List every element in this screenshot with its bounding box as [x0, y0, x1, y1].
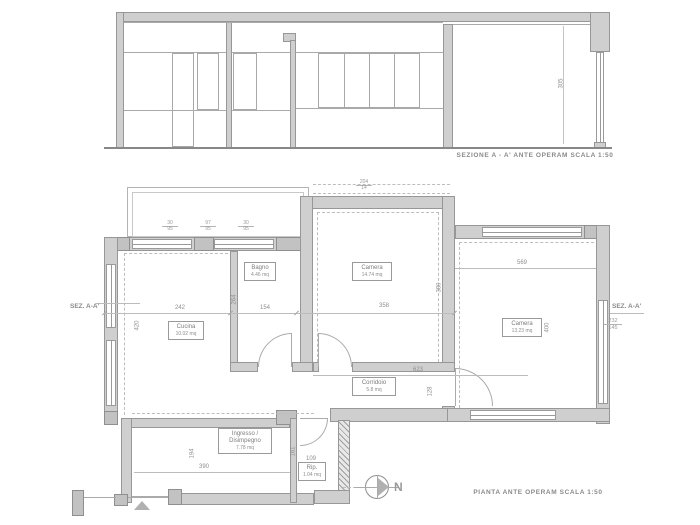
section-cut-line-left: [96, 303, 140, 304]
room-name: Bagno: [247, 265, 273, 272]
wall-bagno-bottom-2: [292, 362, 313, 372]
room-area: 7.78 mq: [221, 445, 269, 451]
room-area: 13.23 mq: [505, 328, 539, 334]
room-label-cucina: Cucina 10.02 mq: [168, 321, 204, 340]
dim-small-bottom: 95: [238, 227, 254, 232]
room-label-camera-right: Camera 13.23 mq: [502, 318, 542, 337]
section-sill-line-3: [296, 108, 443, 109]
sez-label-left: SEZ. A-A': [70, 303, 99, 310]
window-bottom-right: [470, 410, 556, 420]
door-leaf-rip: [300, 418, 328, 419]
dim-section-height: 305: [559, 71, 566, 97]
dim-bagno-depth: 264: [232, 289, 239, 311]
dim-small-bottom: 95: [200, 227, 216, 232]
level-top: 232: [604, 318, 622, 325]
entrance-threshold-line: [132, 496, 168, 497]
section-window-right: [596, 52, 604, 144]
dim-corridoio-width: 623: [398, 367, 438, 374]
dim-camera-right-height: 400: [545, 316, 552, 340]
door-arc-bagno: [258, 333, 292, 367]
section-partition-a: [226, 22, 232, 148]
dashed-camera-right-h: [459, 242, 594, 243]
window-top-right: [482, 227, 582, 237]
north-label: N: [394, 480, 403, 494]
dim-bagno-width: 154: [248, 305, 282, 312]
room-label-ingresso: Ingresso / Disimpegno 7.78 mq: [218, 428, 272, 454]
pier-entry: [168, 489, 182, 505]
dim-ingresso-height: 194: [190, 442, 197, 466]
pier-left-bottom: [104, 411, 118, 425]
balcony-dashed-line-1: [313, 184, 450, 185]
balcony-dashed-line-2: [313, 193, 450, 194]
section-ceiling-line: [124, 22, 443, 23]
wall-ingresso-top: [121, 418, 290, 428]
door-arc-rip: [300, 418, 328, 446]
room-area: 14.74 mq: [355, 272, 389, 278]
dim-camera-mid-width: 358: [362, 303, 406, 310]
dim-line-ingresso: [134, 472, 290, 473]
dim-cucina-height: 420: [135, 314, 142, 338]
dim-ingresso-width: 390: [186, 464, 222, 471]
section-partition-b: [290, 40, 296, 148]
room-label-rip: Rip. 1.04 mq: [298, 462, 326, 481]
room-label-bagno: Bagno 4.46 mq: [244, 262, 276, 281]
room-label-camera-mid: Camera 14.74 mq: [352, 262, 392, 281]
mullion: [394, 54, 395, 107]
level-marker-right: 232 145: [604, 318, 622, 331]
window-right: [598, 300, 608, 404]
door-leaf-camera-right: [455, 368, 456, 406]
entrance-arrow: [134, 501, 150, 510]
dim-corridoio-height: 128: [428, 381, 435, 403]
dim-cucina-width: 242: [160, 305, 200, 312]
room-area: 4.46 mq: [247, 272, 273, 278]
porch-column-2: [114, 494, 128, 506]
section-corner-right: [590, 12, 610, 52]
room-name: Corridoio: [355, 380, 393, 387]
room-area: 1.04 mq: [301, 472, 323, 478]
room-name: Rip.: [301, 465, 323, 472]
door-leaf-bagno: [291, 333, 292, 367]
section-window-1: [197, 53, 219, 110]
dim-line-corridoio: [313, 375, 528, 376]
wall-camera-mid-left: [300, 196, 313, 372]
porch-line-2: [128, 497, 168, 498]
section-window-2: [233, 53, 257, 110]
dim-small-bottom: 14: [356, 186, 372, 191]
window-left-1: [106, 264, 116, 328]
wall-rip-bottom: [314, 490, 350, 504]
section-sill-line-1: [124, 110, 226, 111]
dim-line-camera-right: [455, 268, 596, 269]
section-partition-c: [443, 24, 453, 148]
room-name-line2: Disimpegno: [221, 438, 269, 445]
section-ceiling-line-right: [453, 24, 590, 25]
section-door: [172, 53, 194, 147]
door-arc-camera-right: [455, 368, 493, 406]
wall-bagno-bottom-1: [230, 362, 258, 372]
window-left-2: [106, 340, 116, 406]
dim-camera-right-width: 569: [500, 260, 544, 267]
wall-camera-mid-right: [442, 196, 455, 372]
window-top-a: [132, 239, 192, 249]
section-title: SEZIONE A - A' ANTE OPERAM SCALA 1:50: [440, 152, 630, 159]
dim-small-4: 204 14: [356, 180, 372, 191]
section-sill-line-2: [232, 110, 290, 111]
room-name: Ingresso /: [221, 431, 269, 438]
section-floor-line: [104, 147, 612, 149]
dashed-cucina-v: [124, 253, 125, 415]
sez-label-right: SEZ. A-A': [612, 303, 641, 310]
compass-needle-icon: [378, 478, 389, 496]
window-top-b: [214, 239, 274, 249]
architectural-drawing-sheet: 305 SEZIONE A - A' ANTE OPERAM SCALA 1:5…: [0, 0, 700, 525]
porch-line-1: [84, 497, 116, 498]
room-name: Camera: [505, 321, 539, 328]
wall-ingresso-left: [121, 418, 132, 503]
terrace-outline-inner: [132, 192, 304, 237]
room-name: Camera: [355, 265, 389, 272]
section-cut-line-right: [610, 313, 644, 314]
section-ceiling-slab: [122, 12, 608, 22]
room-label-corridoio: Corridoio 5.8 mq: [352, 377, 396, 396]
mullion: [344, 54, 345, 107]
room-area: 10.02 mq: [171, 331, 201, 337]
plan-title: PIANTA ANTE OPERAM SCALA 1:50: [458, 489, 618, 496]
section-window-band: [318, 53, 420, 108]
section-wall-left: [116, 12, 124, 148]
dim-small-bottom: 95: [162, 227, 178, 232]
dashed-cucina-h: [124, 253, 228, 254]
dim-small-2: 97 95: [200, 221, 216, 232]
pier-top-left-2: [194, 237, 214, 251]
dim-small-3: 30 95: [238, 221, 254, 232]
room-area: 5.8 mq: [355, 387, 393, 393]
door-leaf-camera-mid: [318, 333, 319, 367]
room-name: Cucina: [171, 324, 201, 331]
dashed-camera-mid-h: [317, 212, 439, 213]
mullion: [369, 54, 370, 107]
porch-column-1: [72, 490, 84, 516]
dim-camera-mid-height: 380: [437, 276, 444, 300]
level-bottom: 145: [604, 325, 622, 331]
dim-line-main: [104, 313, 455, 314]
dashed-ingresso-top: [132, 413, 314, 414]
wall-camera-mid-top: [300, 196, 455, 209]
dim-small-1: 30 95: [162, 221, 178, 232]
door-arc-camera-mid: [318, 333, 352, 367]
